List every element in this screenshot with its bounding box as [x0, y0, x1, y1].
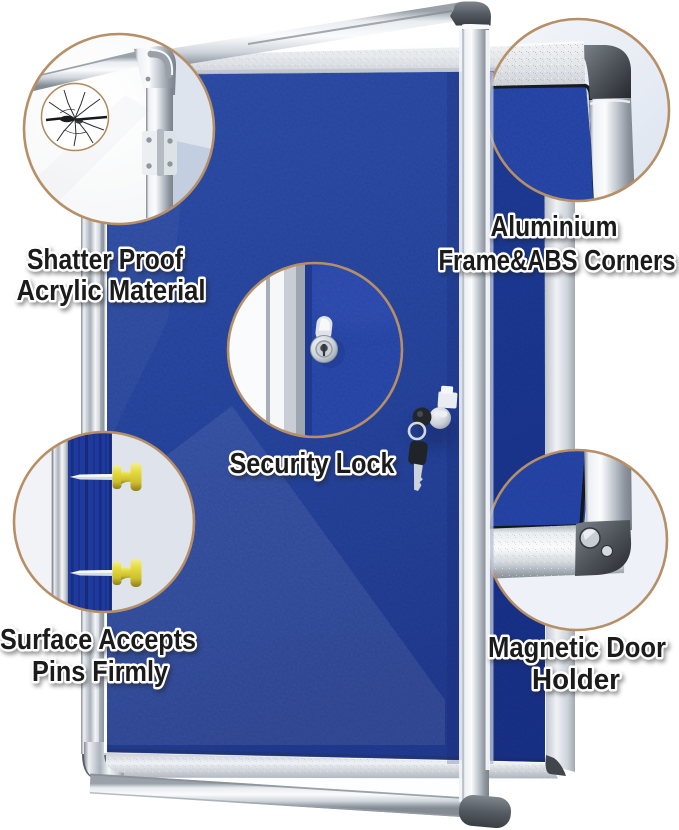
svg-text:Holder: Holder	[532, 664, 620, 696]
svg-text:Magnetic Door: Magnetic Door	[488, 632, 666, 664]
svg-text:Shatter Proof: Shatter Proof	[27, 244, 183, 276]
svg-text:Security Lock: Security Lock	[230, 448, 396, 480]
svg-text:Acrylic Material: Acrylic Material	[17, 275, 206, 307]
svg-text:Aluminium: Aluminium	[491, 211, 618, 243]
svg-text:Pins Firmly: Pins Firmly	[32, 656, 168, 688]
svg-text:Surface Accepts: Surface Accepts	[0, 624, 196, 656]
svg-text:Frame&ABS Corners: Frame&ABS Corners	[439, 245, 676, 277]
